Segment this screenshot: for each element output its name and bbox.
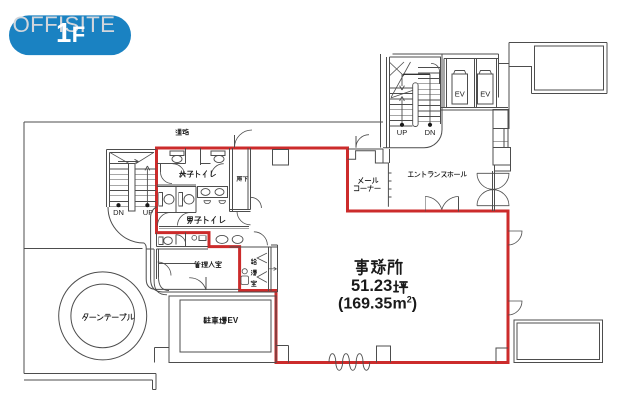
svg-text:1F: 1F (56, 17, 85, 48)
svg-text:m2): m2) (393, 295, 418, 313)
svg-text:DN: DN (113, 208, 124, 217)
svg-text:EV: EV (228, 316, 239, 325)
svg-text:(169.35: (169.35 (338, 296, 392, 313)
svg-text:EV: EV (480, 90, 490, 99)
svg-text:51.23: 51.23 (351, 277, 392, 295)
svg-text:DN: DN (425, 128, 436, 137)
svg-text:EV: EV (455, 90, 465, 99)
svg-text:UP: UP (397, 128, 407, 137)
